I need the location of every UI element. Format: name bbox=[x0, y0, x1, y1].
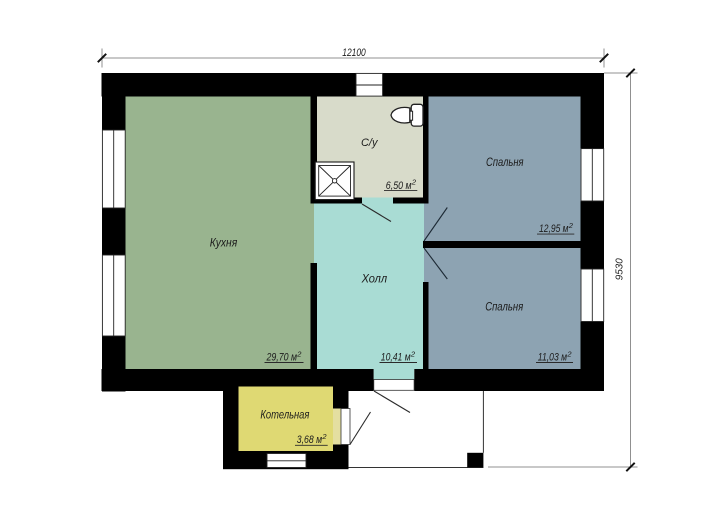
svg-text:2: 2 bbox=[411, 178, 417, 187]
svg-text:2: 2 bbox=[296, 350, 302, 359]
svg-text:12,95 м: 12,95 м bbox=[539, 223, 569, 235]
svg-text:3,68 м: 3,68 м bbox=[297, 434, 323, 446]
svg-text:С/у: С/у bbox=[361, 137, 379, 149]
svg-text:Кухня: Кухня bbox=[210, 237, 238, 249]
svg-text:2: 2 bbox=[568, 221, 574, 230]
svg-text:2: 2 bbox=[566, 350, 572, 359]
svg-text:Котельная: Котельная bbox=[260, 410, 309, 422]
svg-text:9530: 9530 bbox=[613, 258, 625, 280]
svg-text:Спальня: Спальня bbox=[486, 157, 524, 169]
svg-text:2: 2 bbox=[410, 350, 416, 359]
svg-text:2: 2 bbox=[321, 432, 327, 441]
svg-text:29,70 м: 29,70 м bbox=[266, 352, 298, 364]
svg-text:10,41 м: 10,41 м bbox=[381, 352, 411, 364]
svg-text:Спальня: Спальня bbox=[485, 302, 523, 314]
svg-text:12100: 12100 bbox=[342, 47, 366, 59]
svg-text:11,03 м: 11,03 м bbox=[538, 352, 568, 364]
svg-text:Холл: Холл bbox=[361, 274, 388, 286]
